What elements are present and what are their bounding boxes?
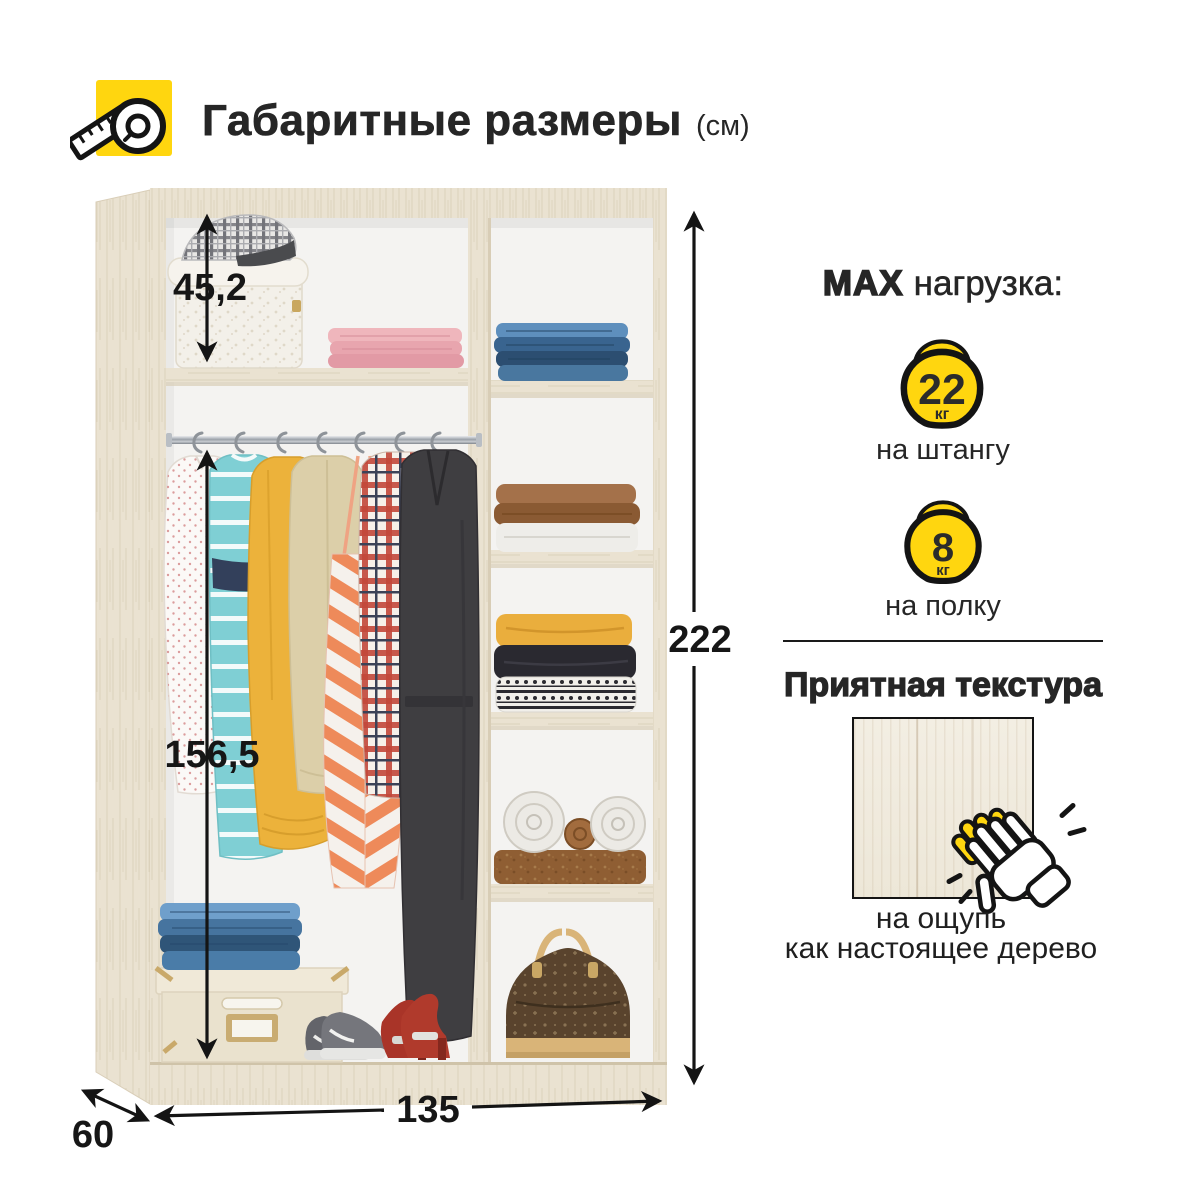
page-title: Габаритные размеры xyxy=(202,96,682,146)
jeans-stack-left xyxy=(158,903,302,970)
load-label-rod: на штангу xyxy=(778,434,1108,467)
load-unit-shelf: кг xyxy=(936,563,950,579)
sweater-stack xyxy=(494,614,636,712)
arrow-width-left xyxy=(157,1110,384,1116)
clapping-hand-icon xyxy=(942,790,1092,918)
dimension-total-height: 222 xyxy=(668,619,731,661)
page-header: Габаритные размеры (см) xyxy=(202,96,750,146)
dimension-depth: 60 xyxy=(72,1114,114,1156)
section-divider xyxy=(783,640,1103,642)
measuring-tape-icon xyxy=(70,66,180,166)
max-load-strong: MAX xyxy=(823,264,904,303)
kettlebell-22-icon: 22 кг xyxy=(894,324,990,432)
load-unit-rod: кг xyxy=(935,406,950,423)
texture-caption-line2: как настоящее дерево xyxy=(731,933,1151,964)
dimension-top-section-height: 45,2 xyxy=(173,267,247,309)
texture-caption-line1: на ощупь xyxy=(731,903,1151,934)
load-label-shelf: на полку xyxy=(778,590,1108,623)
max-load-heading: MAXнагрузка: xyxy=(778,264,1108,304)
jeans-stack-right xyxy=(494,323,630,381)
dimension-width: 135 xyxy=(396,1089,459,1131)
top-shelf xyxy=(166,368,468,382)
texture-heading: Приятная текстура xyxy=(778,666,1108,705)
towel-stack xyxy=(494,484,640,552)
kettlebell-8-icon: 8 кг xyxy=(898,486,988,587)
left-side-panel xyxy=(96,190,150,1104)
infographic-canvas: 45,2 156,5 222 135 60 Габаритные размеры… xyxy=(0,0,1182,1182)
title-unit: (см) xyxy=(696,110,750,143)
max-load-rest: нагрузка: xyxy=(914,264,1063,303)
dimension-hanging-section-height: 156,5 xyxy=(164,734,259,776)
folded-clothes-pink xyxy=(328,328,464,368)
garment-dark-coat xyxy=(400,450,479,1042)
